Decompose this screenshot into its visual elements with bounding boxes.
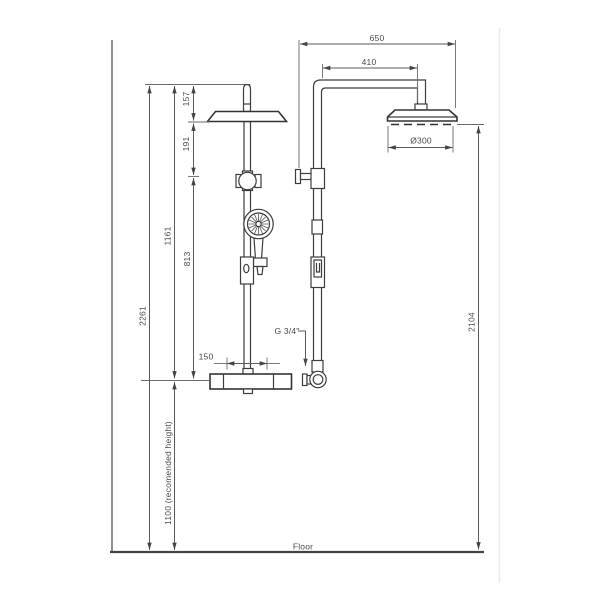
shower-arm-inner (322, 88, 418, 104)
hand-shower-holder (241, 257, 268, 284)
dimension-supply-centres: 150 (199, 352, 280, 370)
shower-dimension-drawing: Floor (0, 0, 600, 600)
head-nipple-nut (415, 104, 427, 110)
valve-body-side (310, 371, 326, 387)
inlet-nut (303, 374, 308, 386)
shower-arm-outer (314, 80, 426, 104)
shower-dimension-drawing-page: Floor (0, 0, 600, 600)
dim-label-650: 650 (370, 33, 385, 43)
overhead-shower-front (208, 112, 287, 122)
floor-label: Floor (293, 542, 313, 552)
valve-bottom-outlet (244, 389, 253, 394)
dimension-head-to-floor: 2104 (457, 125, 484, 550)
connection-label: G 3/4" (274, 326, 299, 336)
dimension-head-diameter: Ø300 (388, 126, 453, 153)
dim-label-1100: 1100 (recomended height) (163, 421, 173, 525)
wall-bracket-side (296, 169, 325, 189)
valve-riser-connector-side (312, 361, 323, 373)
thermostatic-valve-front (210, 369, 292, 394)
dimension-top-to-head: 157 (181, 86, 194, 121)
dimension-top-to-valve: 1161 (163, 86, 175, 379)
holder-side (311, 257, 325, 288)
dim-label-2104: 2104 (467, 312, 477, 332)
dim-label-191: 191 (181, 137, 191, 152)
dim-label-2261: 2261 (138, 306, 148, 326)
dim-label-d300: Ø300 (410, 136, 432, 146)
dimension-total-height: 2261 (138, 86, 150, 550)
hand-shower-handle (254, 238, 263, 259)
dim-label-150: 150 (199, 352, 214, 362)
connection-callout: G 3/4" (274, 326, 305, 366)
dimension-recommended-height: 1100 (recomended height) (163, 382, 175, 550)
dim-label-813: 813 (182, 252, 192, 267)
dimension-slider-to-valve: 813 (182, 177, 199, 379)
inlet-valve-side (303, 371, 327, 387)
pipe-top-cap (244, 85, 251, 112)
dimension-head-to-slider: 191 (181, 124, 194, 176)
dim-label-410: 410 (362, 57, 377, 67)
dim-label-157: 157 (181, 92, 191, 107)
slider-clamp (236, 171, 261, 191)
riser-pipe-front (244, 122, 251, 374)
pipe-joint-side (312, 220, 323, 234)
valve-body (210, 374, 292, 389)
overhead-shower-side (388, 110, 458, 125)
dim-label-1161: 1161 (163, 226, 173, 245)
side-view (296, 80, 458, 388)
